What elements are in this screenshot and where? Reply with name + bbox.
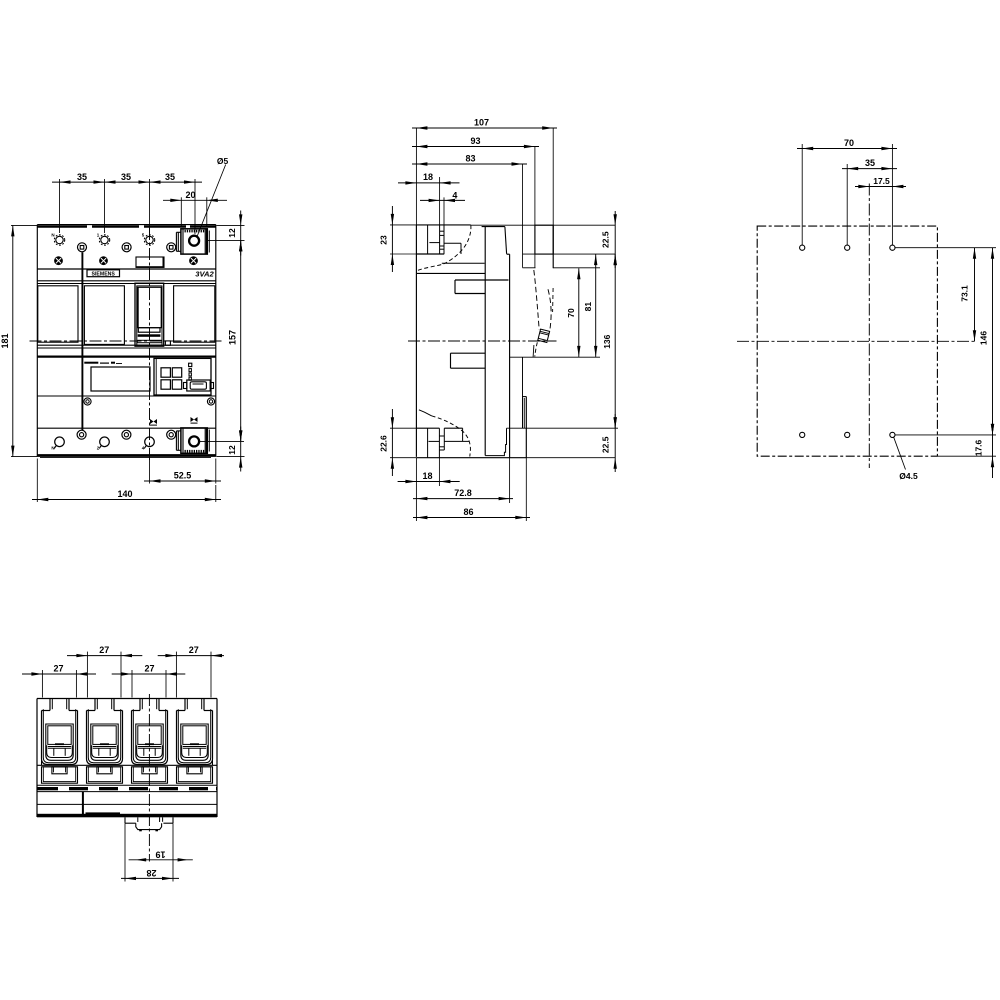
svg-text:27: 27: [144, 663, 154, 673]
svg-text:136: 136: [602, 334, 612, 348]
svg-text:28: 28: [146, 868, 156, 878]
svg-text:157: 157: [228, 330, 238, 345]
svg-text:83: 83: [465, 153, 475, 163]
svg-text:17.6: 17.6: [973, 439, 983, 456]
svg-text:52.5: 52.5: [174, 471, 192, 481]
svg-text:SIEMENS: SIEMENS: [92, 271, 116, 277]
svg-text:20: 20: [185, 190, 195, 200]
svg-text:72.8: 72.8: [454, 488, 472, 498]
svg-text:Ø4.5: Ø4.5: [899, 471, 918, 481]
svg-text:70: 70: [844, 138, 854, 148]
svg-text:N: N: [51, 233, 54, 238]
svg-text:N: N: [51, 446, 54, 451]
svg-text:4: 4: [452, 190, 457, 200]
svg-text:35: 35: [865, 158, 875, 168]
svg-text:35: 35: [77, 172, 87, 182]
svg-text:86: 86: [463, 507, 473, 517]
svg-text:27: 27: [99, 645, 109, 655]
svg-text:Ø5: Ø5: [217, 156, 229, 166]
svg-text:73.1: 73.1: [960, 285, 970, 302]
svg-text:22.6: 22.6: [379, 435, 389, 452]
svg-text:93: 93: [470, 136, 480, 146]
svg-text:107: 107: [474, 117, 489, 127]
svg-text:18: 18: [422, 471, 432, 481]
svg-text:23: 23: [379, 235, 389, 245]
svg-text:18: 18: [423, 172, 433, 182]
svg-text:81: 81: [583, 302, 593, 312]
svg-text:19: 19: [155, 849, 165, 859]
svg-text:3VA2: 3VA2: [195, 269, 214, 278]
svg-text:181: 181: [0, 333, 10, 348]
svg-text:70: 70: [566, 308, 576, 318]
svg-text:27: 27: [53, 663, 63, 673]
svg-text:35: 35: [121, 172, 131, 182]
svg-text:140: 140: [117, 489, 132, 499]
svg-text:35: 35: [165, 172, 175, 182]
svg-text:22.5: 22.5: [600, 436, 610, 453]
svg-text:22.5: 22.5: [600, 231, 610, 248]
svg-text:146: 146: [978, 331, 988, 345]
svg-text:27: 27: [189, 645, 199, 655]
svg-text:17.5: 17.5: [873, 176, 890, 186]
svg-text:12: 12: [227, 228, 237, 238]
svg-text:12: 12: [227, 445, 237, 455]
